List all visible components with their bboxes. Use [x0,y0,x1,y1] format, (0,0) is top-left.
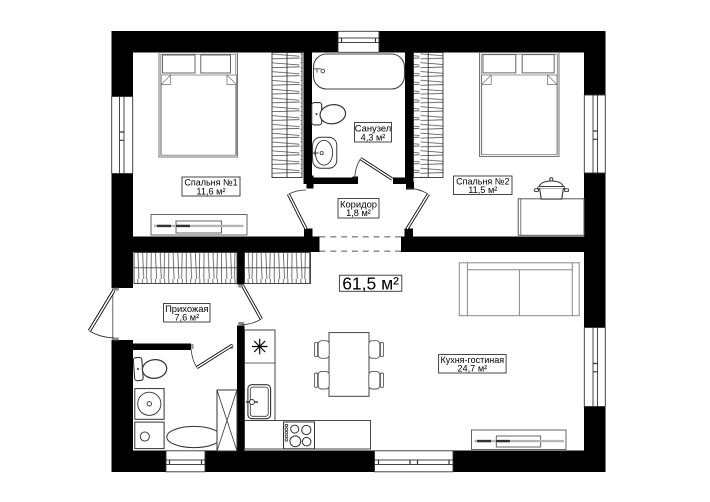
svg-text:61,5 м²: 61,5 м² [342,273,399,293]
svg-text:24,7 м²: 24,7 м² [457,364,487,374]
svg-text:4,3 м²: 4,3 м² [361,132,386,142]
svg-text:11,6 м²: 11,6 м² [196,186,225,196]
svg-text:11,5 м²: 11,5 м² [468,185,497,195]
svg-text:1,8 м²: 1,8 м² [346,208,371,218]
svg-text:7,6 м²: 7,6 м² [174,313,199,323]
